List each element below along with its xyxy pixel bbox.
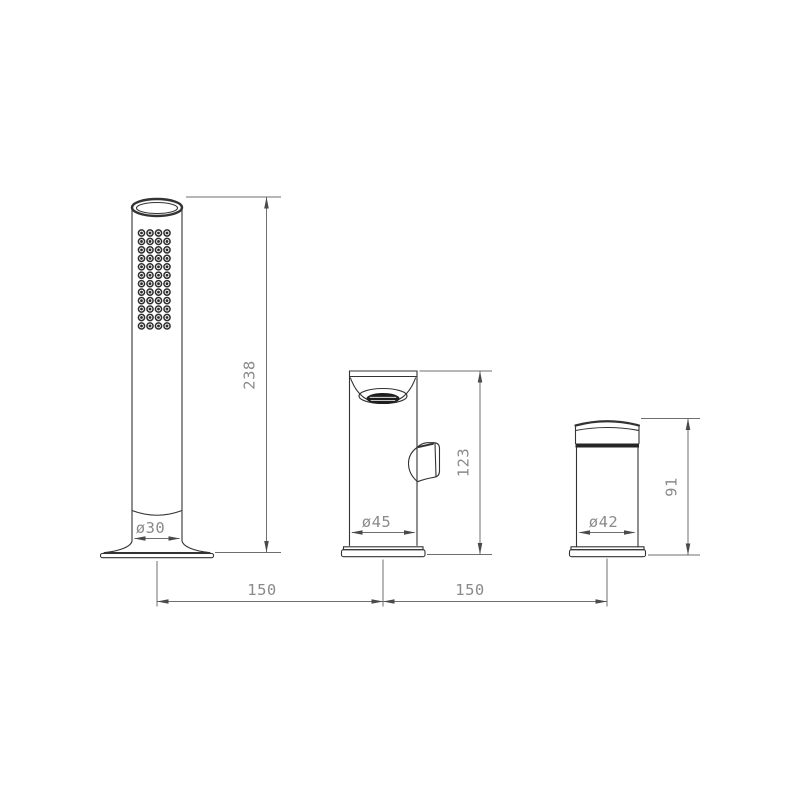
spout-height-label: 123 xyxy=(455,448,473,478)
nozzle-dot-center xyxy=(157,249,160,252)
spout-base-plate xyxy=(342,550,426,557)
nozzle-dot-center xyxy=(157,282,160,285)
hand-shower-base-plate xyxy=(101,554,214,558)
nozzle-dot-center xyxy=(149,257,152,260)
handle-drawing xyxy=(570,421,646,556)
dimension-handle-diameter: ø42 xyxy=(579,513,636,535)
hand-shower-base-flare-right xyxy=(182,541,209,553)
handle-top-curve xyxy=(576,421,640,425)
nozzle-dot-center xyxy=(149,308,152,311)
nozzle-dot-center xyxy=(149,265,152,268)
nozzle-dot-center xyxy=(149,274,152,277)
nozzle-dot-center xyxy=(166,282,169,285)
nozzle-dot-center xyxy=(166,308,169,311)
nozzle-dot-center xyxy=(157,308,160,311)
nozzle-dot-center xyxy=(140,257,143,260)
nozzle-dot-center xyxy=(140,325,143,328)
nozzle-dot-center xyxy=(166,265,169,268)
nozzle-dot-center xyxy=(166,257,169,260)
nozzle-dot-center xyxy=(140,291,143,294)
nozzle-dot-center xyxy=(157,299,160,302)
nozzle-dot-center xyxy=(149,282,152,285)
handle-base-plate xyxy=(570,550,646,557)
nozzle-dot-center xyxy=(157,232,160,235)
dimension-spout-height: 123 xyxy=(420,371,493,555)
nozzle-dot-center xyxy=(157,257,160,260)
nozzle-dot-center xyxy=(140,282,143,285)
spout-knob-front-edge xyxy=(435,443,436,477)
nozzle-dot-center xyxy=(149,325,152,328)
nozzle-dot-center xyxy=(149,316,152,319)
spout-aerator xyxy=(367,393,400,404)
nozzle-dot-center xyxy=(166,232,169,235)
hand-shower-neck-curve xyxy=(132,511,182,516)
technical-drawing-canvas: ø30 238 ø45 xyxy=(0,0,800,800)
nozzle-dot-center xyxy=(140,274,143,277)
hand-shower-top-inner-rim xyxy=(137,203,178,214)
nozzle-dot-center xyxy=(149,299,152,302)
dimension-spout-diameter: ø45 xyxy=(351,513,416,535)
nozzle-dot-center xyxy=(157,316,160,319)
spout-diameter-label: ø45 xyxy=(362,513,392,531)
nozzle-dot-center xyxy=(140,265,143,268)
handle-diameter-label: ø42 xyxy=(589,513,619,531)
nozzle-dot-center xyxy=(166,299,169,302)
nozzle-dot-center xyxy=(166,274,169,277)
nozzle-dot-center xyxy=(140,299,143,302)
dimension-hand-shower-diameter: ø30 xyxy=(134,519,180,541)
nozzle-dot-center xyxy=(166,249,169,252)
nozzle-dot-center xyxy=(140,308,143,311)
nozzle-dot-center xyxy=(140,232,143,235)
nozzle-dot-center xyxy=(157,291,160,294)
hand-shower-base-flare-left xyxy=(105,541,132,553)
nozzle-grid xyxy=(138,230,170,329)
dimension-handle-height: 91 xyxy=(641,419,700,556)
nozzle-dot-center xyxy=(157,274,160,277)
handle-ring-band xyxy=(576,444,640,448)
spacing-left-label: 150 xyxy=(247,581,277,599)
nozzle-dot-center xyxy=(140,240,143,243)
nozzle-dot-center xyxy=(166,325,169,328)
bath-mixer-technical-drawing: ø30 238 ø45 xyxy=(0,0,800,800)
dimension-hand-shower-height: 238 xyxy=(186,197,281,553)
dimension-hole-spacing: 150 150 xyxy=(157,559,607,607)
nozzle-dot-center xyxy=(166,240,169,243)
nozzle-dot-center xyxy=(140,316,143,319)
nozzle-dot-center xyxy=(140,249,143,252)
nozzle-dot-center xyxy=(157,325,160,328)
nozzle-dot-center xyxy=(149,249,152,252)
hand-shower-diameter-label: ø30 xyxy=(136,519,166,537)
nozzle-dot-center xyxy=(166,291,169,294)
nozzle-dot-center xyxy=(166,316,169,319)
handle-height-label: 91 xyxy=(663,477,681,497)
nozzle-dot-center xyxy=(157,240,160,243)
hand-shower-height-label: 238 xyxy=(241,360,259,390)
hand-shower-drawing xyxy=(101,199,214,558)
nozzle-dot-center xyxy=(149,232,152,235)
spacing-right-label: 150 xyxy=(455,581,485,599)
nozzle-dot-center xyxy=(149,240,152,243)
nozzle-dot-center xyxy=(149,291,152,294)
handle-top-inner-curve xyxy=(576,428,640,431)
nozzle-dot-center xyxy=(157,265,160,268)
